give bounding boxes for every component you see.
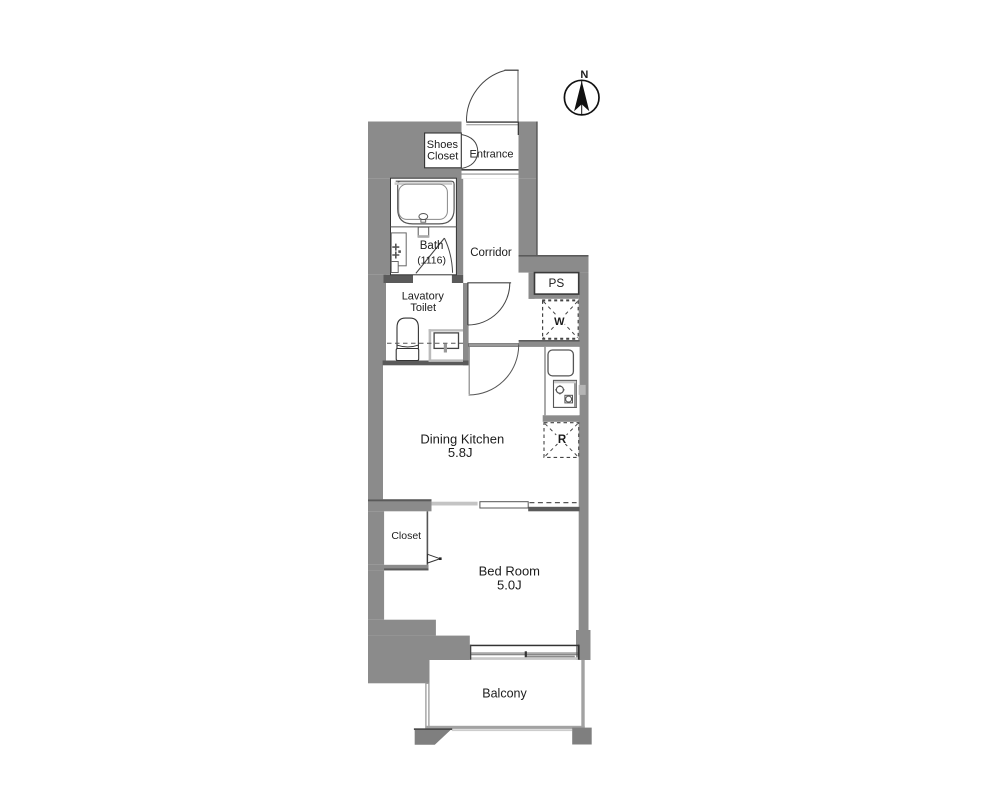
svg-text:Closet: Closet <box>427 150 458 162</box>
svg-text:R: R <box>558 434 567 446</box>
svg-text:Toilet: Toilet <box>410 302 436 314</box>
svg-text:Shoes: Shoes <box>427 139 459 151</box>
svg-text:Bath: Bath <box>420 240 444 252</box>
svg-text:Lavatory: Lavatory <box>402 291 445 303</box>
svg-text:Corridor: Corridor <box>470 247 512 259</box>
svg-text:Closet: Closet <box>391 530 421 542</box>
svg-text:N: N <box>580 69 588 81</box>
svg-text:Balcony: Balcony <box>482 687 527 701</box>
svg-text:Bed Room: Bed Room <box>479 563 540 578</box>
svg-text:PS: PS <box>549 276 565 290</box>
svg-text:Entrance: Entrance <box>469 148 513 160</box>
svg-text:5.0J: 5.0J <box>497 577 522 592</box>
svg-text:W: W <box>554 316 565 328</box>
svg-text:5.8J: 5.8J <box>448 445 473 460</box>
svg-text:(1116): (1116) <box>417 255 446 267</box>
